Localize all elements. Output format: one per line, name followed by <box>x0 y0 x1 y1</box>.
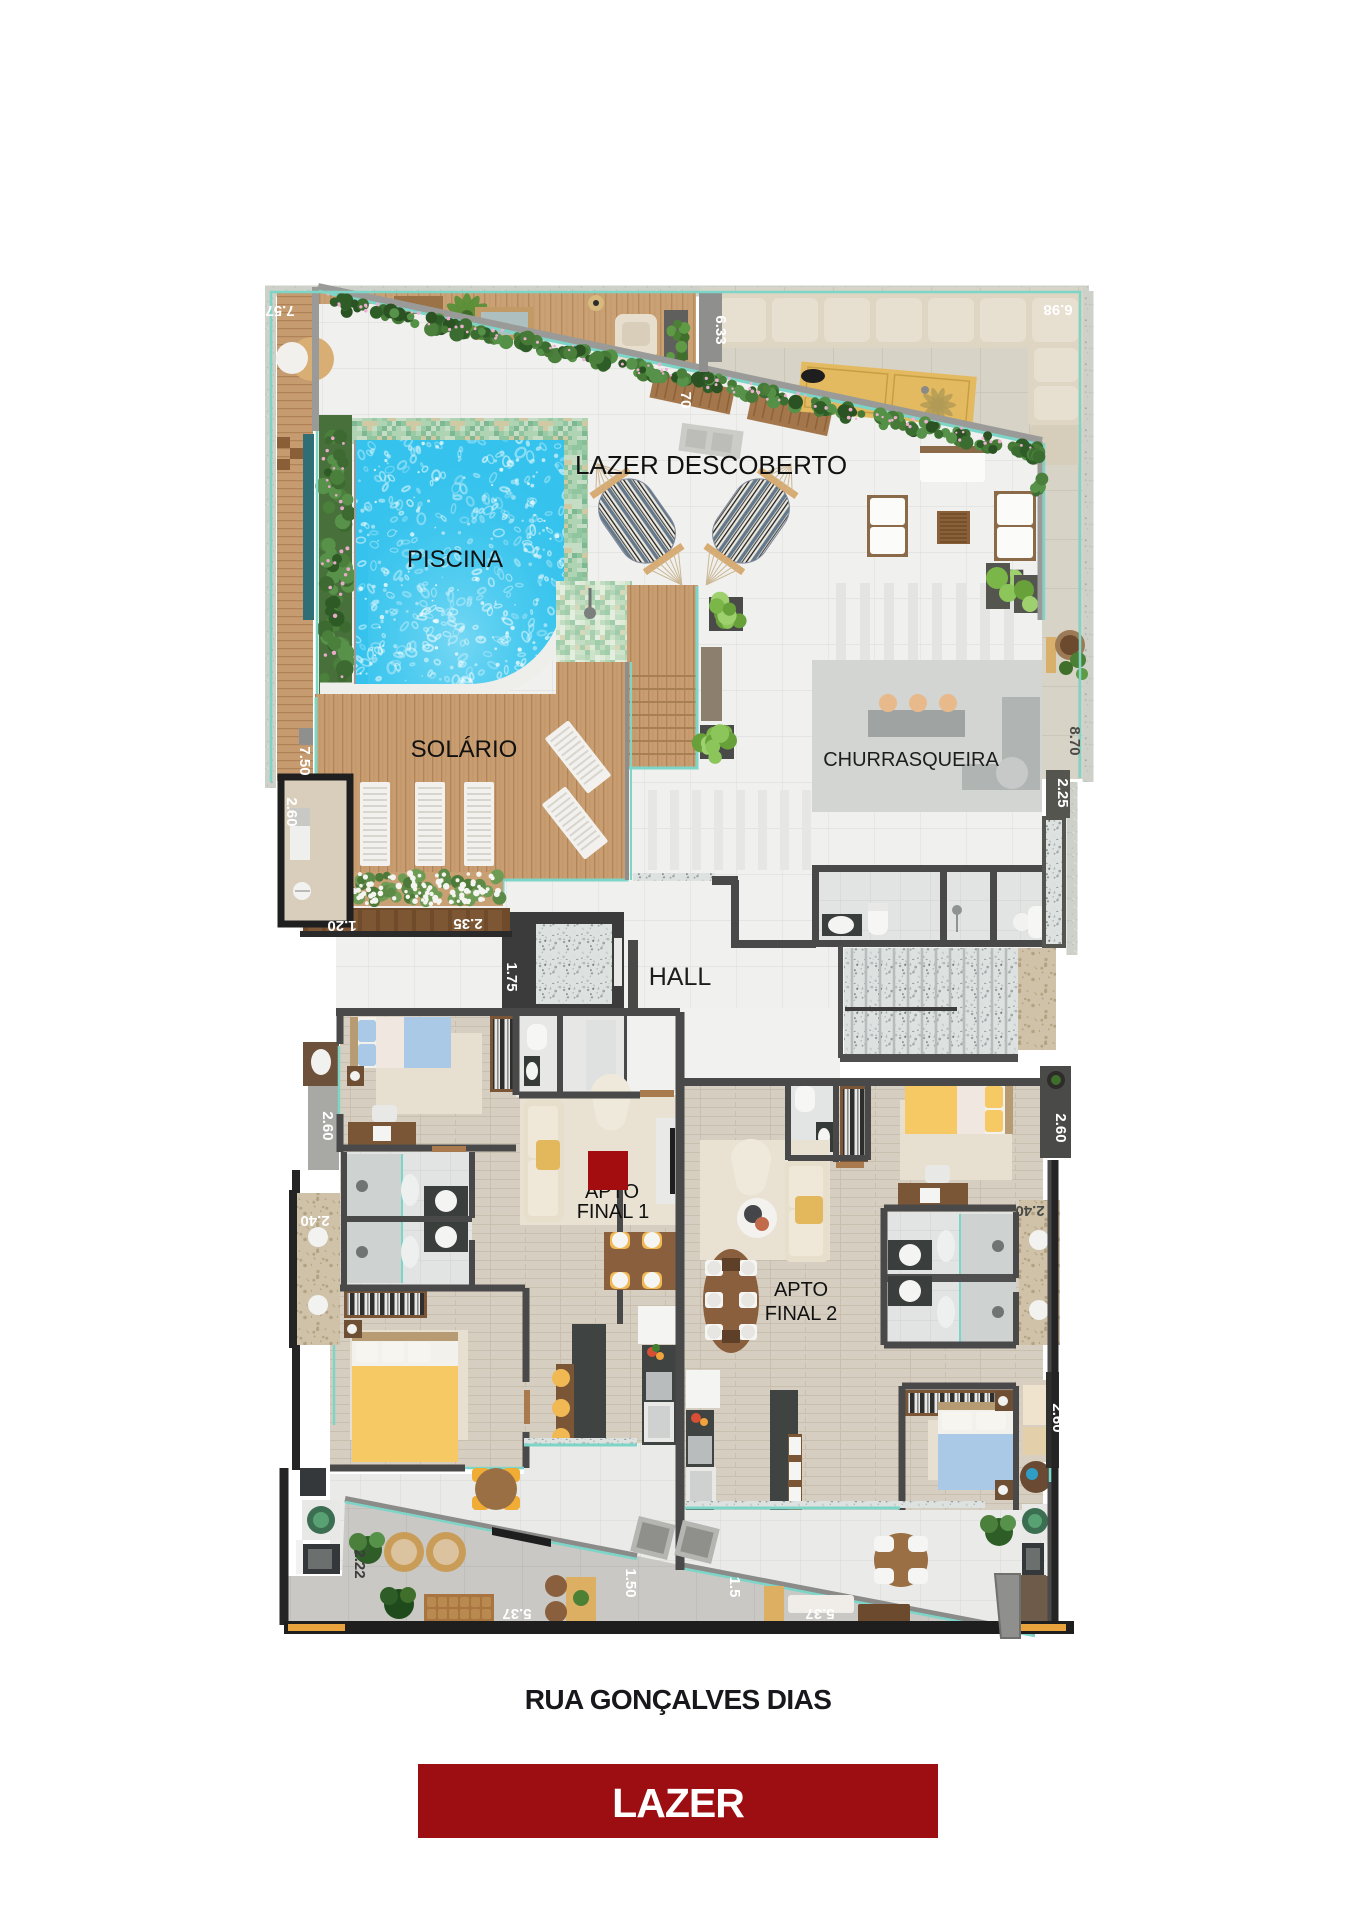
svg-text:2.40: 2.40 <box>300 1212 329 1229</box>
svg-text:2.60: 2.60 <box>301 1359 318 1388</box>
svg-text:8.70: 8.70 <box>1066 726 1083 755</box>
svg-text:LAZER DESCOBERTO: LAZER DESCOBERTO <box>575 450 847 480</box>
svg-text:5.37: 5.37 <box>502 1605 531 1622</box>
svg-text:SOLÁRIO: SOLÁRIO <box>411 736 518 763</box>
svg-text:CHURRASQUEIRA: CHURRASQUEIRA <box>823 749 999 771</box>
svg-text:FINAL 1: FINAL 1 <box>577 1201 650 1223</box>
svg-text:2.60: 2.60 <box>1052 1113 1069 1142</box>
svg-text:2.60: 2.60 <box>283 797 300 826</box>
svg-text:5.37: 5.37 <box>805 1605 834 1622</box>
svg-text:2.25: 2.25 <box>1054 778 1071 807</box>
svg-text:70: 70 <box>677 392 694 409</box>
svg-text:7.50: 7.50 <box>296 746 313 775</box>
svg-text:RUA GONÇALVES DIAS: RUA GONÇALVES DIAS <box>525 1684 832 1715</box>
svg-text:6.33: 6.33 <box>712 315 729 344</box>
svg-text:6.98: 6.98 <box>1043 301 1072 318</box>
svg-text:1.20: 1.20 <box>327 917 356 934</box>
svg-text:1.75: 1.75 <box>503 962 520 991</box>
svg-text:PISCINA: PISCINA <box>407 546 503 573</box>
svg-text:7.57: 7.57 <box>265 302 294 319</box>
svg-text:2.40: 2.40 <box>1015 1202 1044 1219</box>
svg-text:APTO: APTO <box>774 1279 828 1301</box>
svg-text:2.22: 2.22 <box>351 1549 368 1578</box>
svg-text:1.5: 1.5 <box>726 1577 743 1598</box>
svg-text:1.50: 1.50 <box>622 1568 639 1597</box>
svg-text:HALL: HALL <box>649 963 712 991</box>
svg-text:2.35: 2.35 <box>453 915 482 932</box>
svg-text:FINAL 2: FINAL 2 <box>765 1303 838 1325</box>
svg-text:LAZER: LAZER <box>612 1780 744 1826</box>
svg-text:2.60: 2.60 <box>1049 1403 1066 1432</box>
svg-text:2.60: 2.60 <box>319 1111 336 1140</box>
